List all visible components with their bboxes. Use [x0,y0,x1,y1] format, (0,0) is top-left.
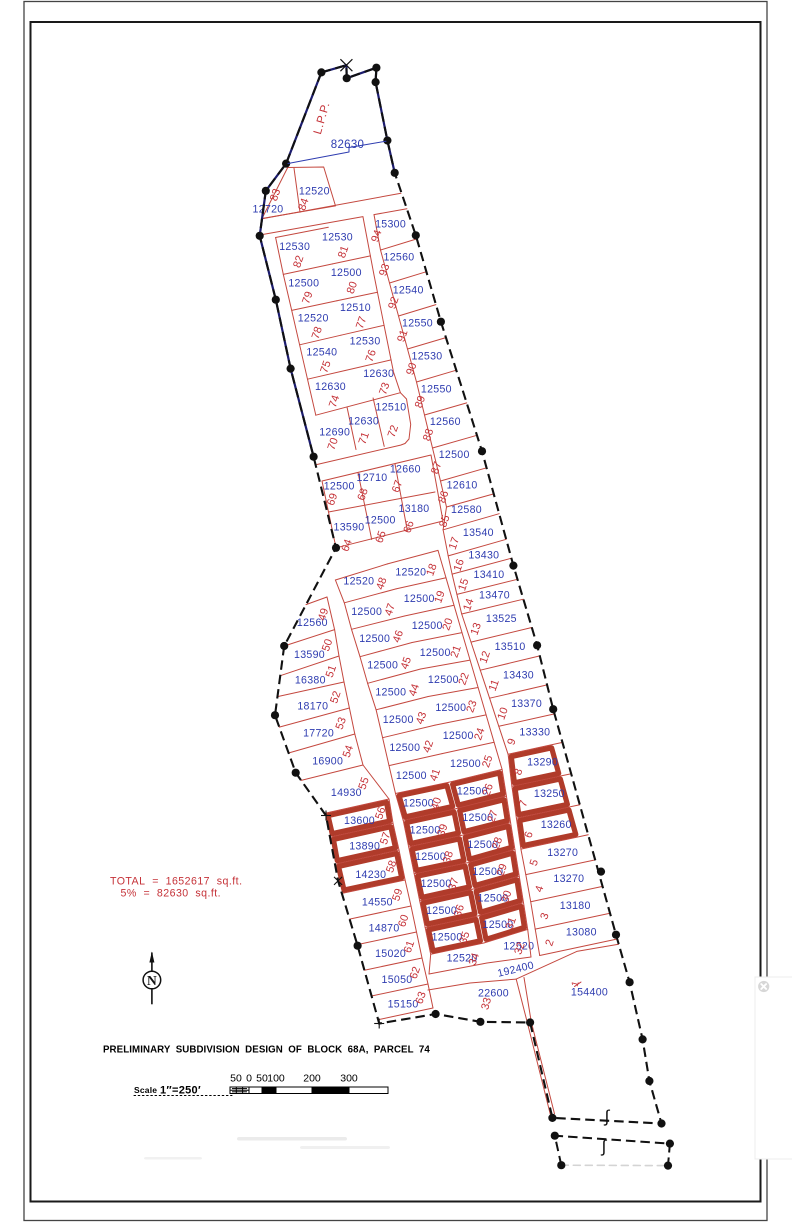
svg-text:12550: 12550 [402,318,433,330]
svg-text:13410: 13410 [474,569,505,581]
svg-text:12500: 12500 [450,758,481,770]
svg-text:200: 200 [303,1073,321,1085]
svg-text:12520: 12520 [299,186,330,198]
svg-text:PRELIMINARY SUBDIVISION DESIGN: PRELIMINARY SUBDIVISION DESIGN OF BLOCK … [103,1045,430,1056]
svg-text:12500: 12500 [412,620,443,632]
svg-text:5% = 82630 sq.ft.: 5% = 82630 sq.ft. [121,888,222,900]
svg-text:16900: 16900 [312,755,343,767]
svg-text:13510: 13510 [495,641,526,653]
svg-text:13180: 13180 [560,900,591,912]
svg-text:14230: 14230 [355,869,386,881]
svg-text:82630: 82630 [331,139,364,151]
svg-text:12630: 12630 [348,416,379,428]
svg-text:13270: 13270 [553,873,584,885]
svg-text:12530: 12530 [322,232,353,244]
svg-text:13600: 13600 [344,815,375,827]
svg-text:12500: 12500 [367,660,398,672]
svg-text:12720: 12720 [253,204,284,216]
svg-text:12500: 12500 [435,702,466,714]
svg-text:TOTAL = 1652617 sq.ft.: TOTAL = 1652617 sq.ft. [110,876,242,888]
svg-text:12540: 12540 [306,346,337,358]
svg-text:12500: 12500 [365,515,396,527]
svg-text:15300: 15300 [375,219,406,231]
svg-text:300: 300 [340,1073,358,1085]
svg-text:12500: 12500 [428,674,459,686]
svg-text:12530: 12530 [412,351,443,363]
svg-text:13260: 13260 [541,819,572,831]
svg-text:13590: 13590 [334,522,365,534]
svg-text:50: 50 [230,1073,242,1085]
svg-text:14930: 14930 [331,787,362,799]
svg-text:12690: 12690 [319,427,350,439]
svg-text:12560: 12560 [430,416,461,428]
svg-text:13080: 13080 [566,926,597,938]
svg-text:12500: 12500 [396,770,427,782]
svg-text:12550: 12550 [421,383,452,395]
svg-text:12500: 12500 [359,633,390,645]
svg-text:Scale: Scale [134,1085,157,1095]
svg-text:13180: 13180 [399,503,430,515]
svg-text:13290: 13290 [527,756,558,768]
svg-text:0: 0 [246,1073,252,1085]
svg-text:N: N [147,973,157,988]
svg-text:12500: 12500 [439,449,470,461]
svg-text:12500: 12500 [404,593,435,605]
svg-text:12520: 12520 [343,576,374,588]
svg-text:13590: 13590 [294,649,325,661]
svg-text:154400: 154400 [571,987,608,999]
svg-text:12500: 12500 [375,686,406,698]
svg-text:12500: 12500 [443,730,474,742]
svg-text:12500: 12500 [288,277,319,289]
svg-text:12530: 12530 [350,335,381,347]
svg-text:12510: 12510 [376,402,407,414]
svg-text:13270: 13270 [547,847,578,859]
svg-text:12520: 12520 [395,567,426,579]
svg-text:13330: 13330 [519,727,550,739]
svg-text:12630: 12630 [315,381,346,393]
svg-text:12560: 12560 [384,252,415,264]
svg-text:100: 100 [267,1073,285,1085]
svg-text:17720: 17720 [303,727,334,739]
svg-text:13430: 13430 [503,670,534,682]
svg-text:12710: 12710 [357,472,388,484]
svg-text:12530: 12530 [279,241,310,253]
svg-text:12660: 12660 [390,464,421,476]
svg-text:12580: 12580 [451,504,482,516]
svg-text:12510: 12510 [340,302,371,314]
svg-text:16380: 16380 [295,674,326,686]
svg-text:12540: 12540 [393,285,424,297]
svg-text:12500: 12500 [389,742,420,754]
svg-text:12500: 12500 [331,267,362,279]
svg-text:13540: 13540 [463,527,494,539]
svg-text:12500: 12500 [420,647,451,659]
svg-text:12500: 12500 [383,714,414,726]
svg-text:12500: 12500 [351,606,382,618]
svg-text:13470: 13470 [479,589,510,601]
svg-text:13370: 13370 [511,698,542,710]
svg-text:12520: 12520 [298,312,329,324]
svg-text:13890: 13890 [349,841,380,853]
svg-text:1″=250′: 1″=250′ [160,1085,201,1097]
svg-text:12630: 12630 [363,368,394,380]
svg-text:18170: 18170 [297,701,328,713]
svg-text:12500: 12500 [324,481,355,493]
svg-text:14870: 14870 [369,922,400,934]
svg-text:13250: 13250 [534,788,565,800]
svg-text:14550: 14550 [362,897,393,909]
svg-text:50: 50 [256,1073,268,1085]
svg-text:12610: 12610 [447,479,478,491]
svg-text:13430: 13430 [468,550,499,562]
svg-text:13525: 13525 [486,613,517,625]
